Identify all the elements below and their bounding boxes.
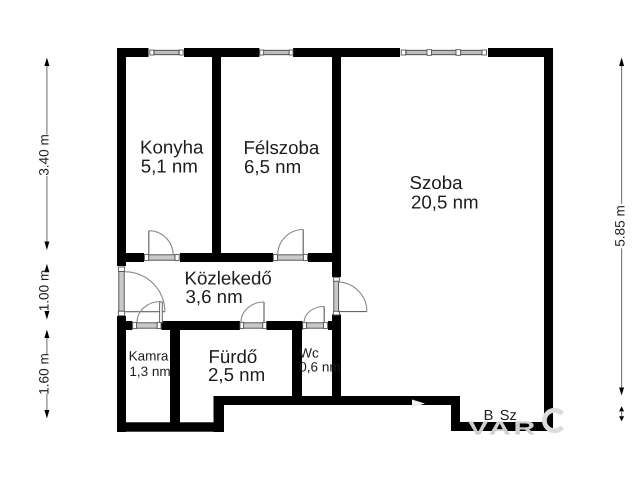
svg-text:5,1 nm: 5,1 nm <box>141 156 198 177</box>
svg-text:Kamra: Kamra <box>129 348 169 363</box>
svg-text:1.60 m: 1.60 m <box>37 353 52 395</box>
svg-text:1,3 nm: 1,3 nm <box>129 364 170 379</box>
svg-text:6,5 nm: 6,5 nm <box>244 156 301 177</box>
svg-text:3,6 nm: 3,6 nm <box>186 286 243 307</box>
svg-text:3.40 m: 3.40 m <box>37 134 52 176</box>
svg-text:VAR: VAR <box>468 419 538 440</box>
svg-text:5.85 m: 5.85 m <box>612 205 627 247</box>
svg-text:Wc: Wc <box>299 345 319 360</box>
svg-text:Félszoba: Félszoba <box>244 137 320 158</box>
svg-text:0,6 nm: 0,6 nm <box>299 359 340 374</box>
svg-text:Konyha: Konyha <box>140 137 204 158</box>
svg-text:1.00 m: 1.00 m <box>37 270 52 312</box>
svg-text:2,5 nm: 2,5 nm <box>208 364 265 385</box>
svg-text:20,5 nm: 20,5 nm <box>411 192 479 213</box>
svg-text:Szoba: Szoba <box>410 172 464 193</box>
